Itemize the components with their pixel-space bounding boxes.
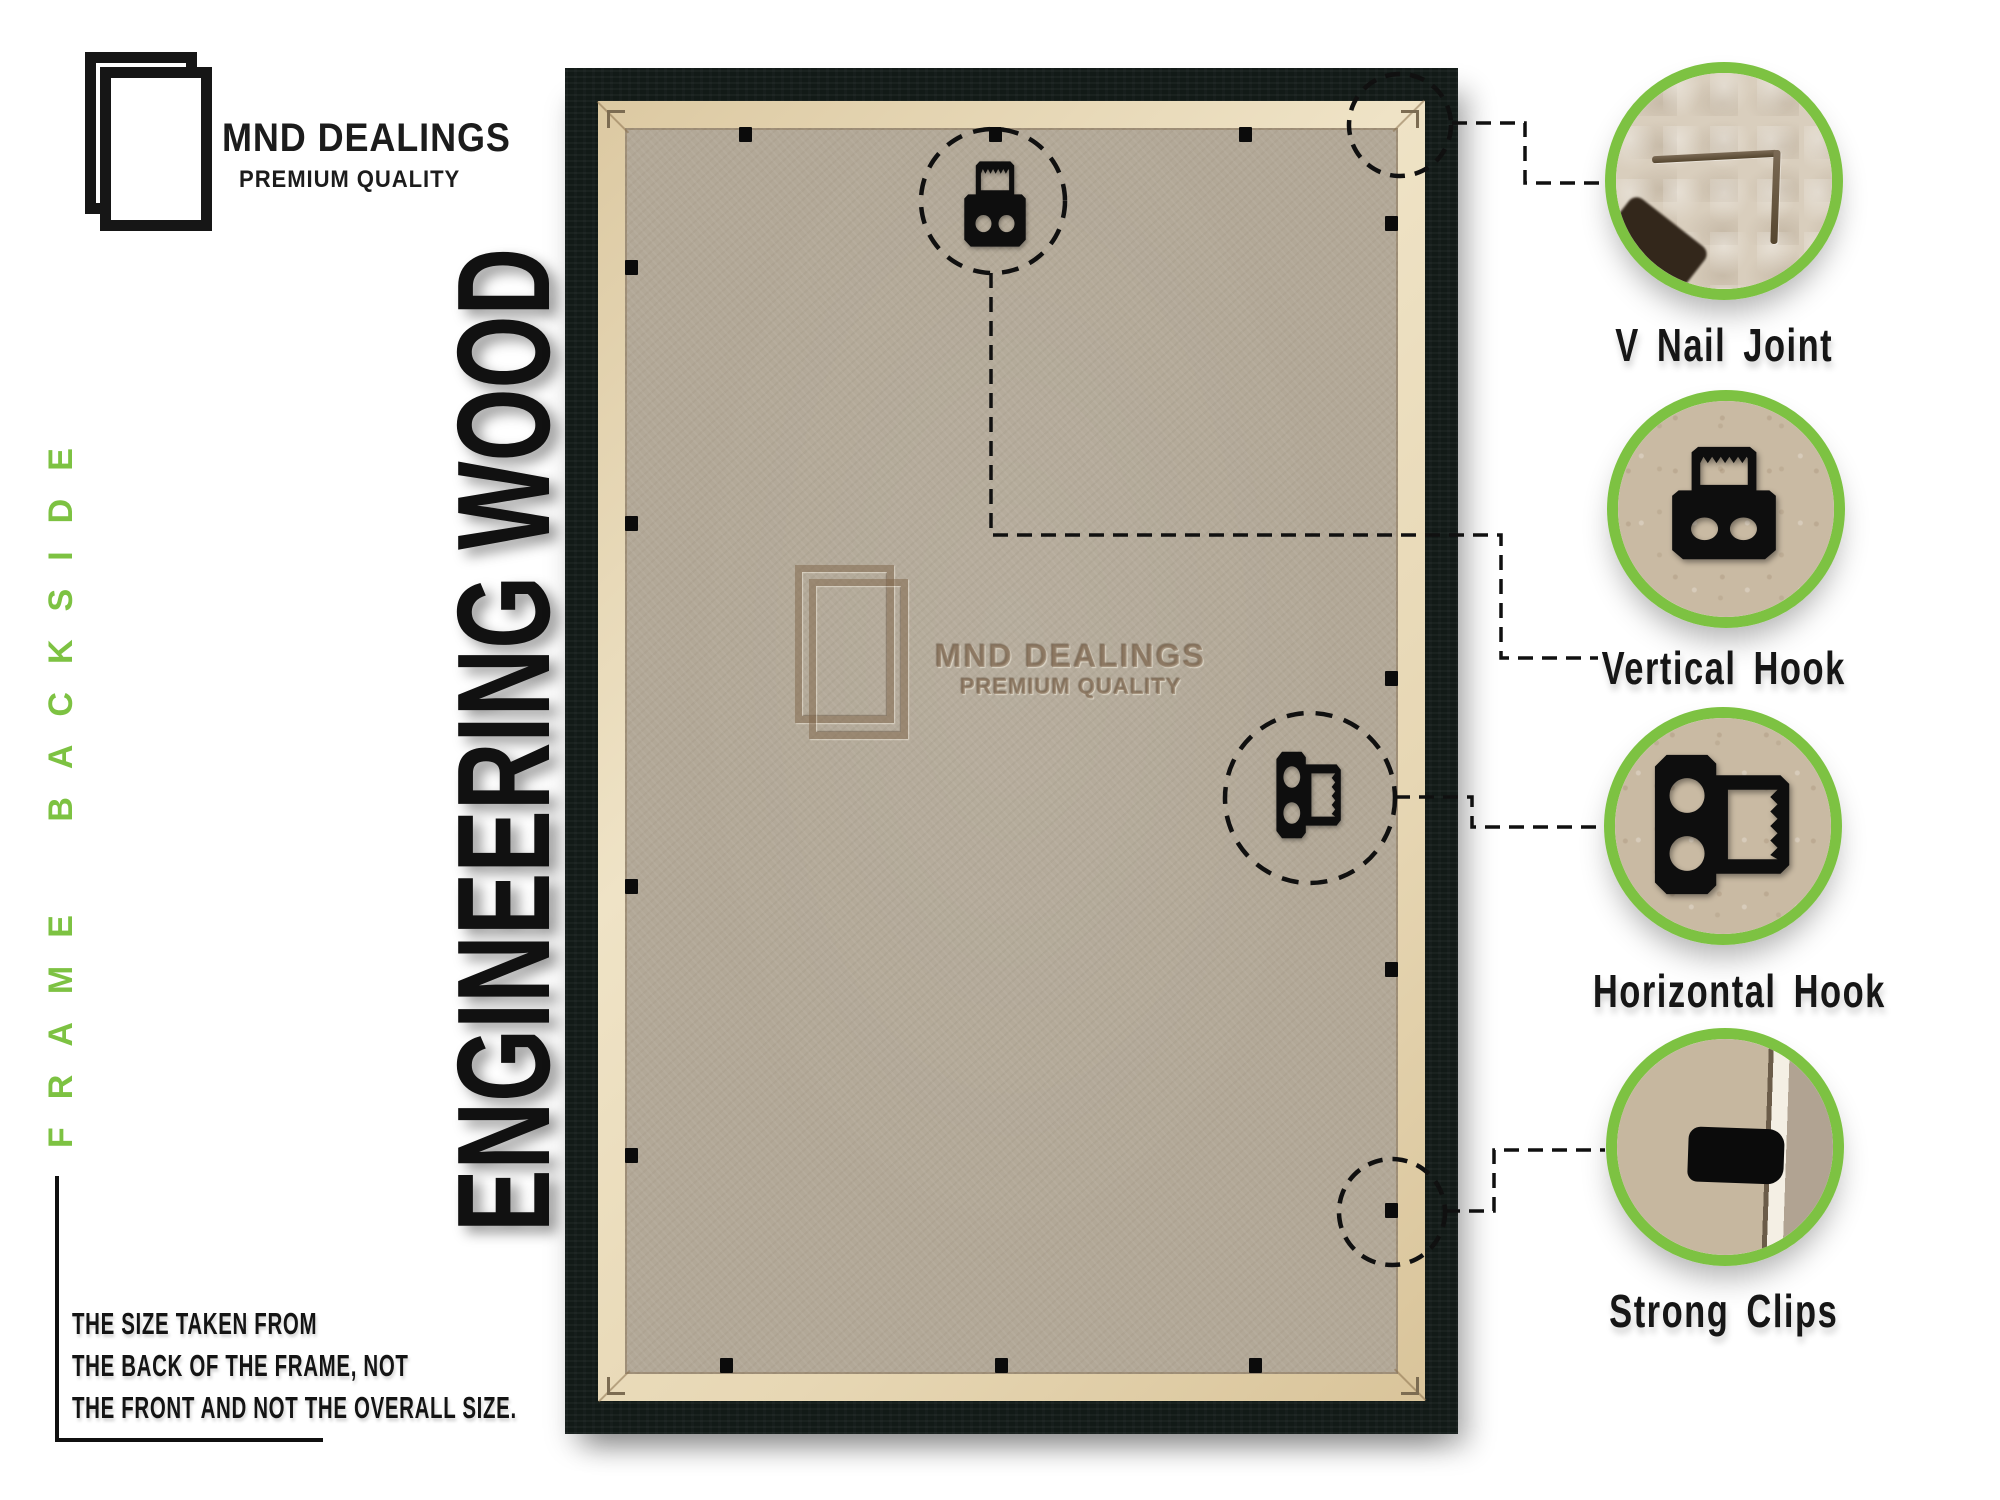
engineering-wood-label: ENGINEERING WOOD <box>438 264 570 1232</box>
watermark-logo-frame-icon <box>809 579 908 739</box>
note-pointer-line <box>55 1176 59 1442</box>
horizontal-hook-icon <box>1652 752 1798 897</box>
callout-label-vertical-hook: Vertical Hook <box>1544 641 1904 695</box>
retaining-clip <box>1239 127 1252 142</box>
frame-photo: MND DEALINGS PREMIUM QUALITY <box>565 68 1458 1434</box>
callout-label-strong-clips: Strong Clips <box>1544 1284 1904 1338</box>
corner-joint-mark <box>1401 1377 1419 1395</box>
watermark-brand-tagline: PREMIUM QUALITY <box>938 674 1204 700</box>
retaining-clip <box>739 127 752 142</box>
strong-clip-icon <box>1687 1126 1785 1184</box>
brand-name: MND DEALINGS <box>222 116 511 161</box>
note-line: THE FRONT AND NOT THE OVERALL SIZE. <box>72 1390 746 1431</box>
retaining-clip <box>989 127 1002 142</box>
retaining-clip <box>1249 1358 1262 1373</box>
retaining-clip <box>1385 962 1398 977</box>
callout-label-v-nail-joint: V Nail Joint <box>1544 318 1904 372</box>
vertical-hook-icon <box>1670 445 1778 561</box>
retaining-clip <box>1385 216 1398 231</box>
note-line: THE SIZE TAKEN FROM <box>72 1306 443 1347</box>
corner-joint-mark <box>607 110 625 128</box>
note-line: THE BACK OF THE FRAME, NOT <box>72 1348 582 1389</box>
callout-strong-clips <box>1606 1028 1844 1266</box>
v-nail-groove <box>1770 150 1780 244</box>
board-edge-photo <box>1617 1039 1833 1255</box>
connector-v-nail-joint <box>1452 123 1608 183</box>
retaining-clip <box>1385 1203 1398 1218</box>
wood-shadow-wedge <box>1605 193 1711 300</box>
corner-joint-mark <box>1401 110 1419 128</box>
vertical-hook-icon <box>963 160 1027 248</box>
connector-strong-clip <box>1445 1150 1605 1211</box>
retaining-clip <box>1385 671 1398 686</box>
frame-backside-infographic: MND DEALINGS PREMIUM QUALITY FRAME BACKS… <box>0 0 2000 1500</box>
retaining-clip <box>720 1358 733 1373</box>
horizontal-hook-icon <box>1275 750 1345 840</box>
engineering-wood-text: ENGINEERING WOOD <box>438 248 570 1232</box>
frame-backside-text: FRAME BACKSIDE <box>42 420 80 1148</box>
callout-vertical-hook <box>1607 390 1845 628</box>
callout-horizontal-hook <box>1604 707 1842 945</box>
v-nail-groove <box>1652 150 1778 164</box>
brand-logo-frame-icon <box>100 67 212 231</box>
retaining-clip <box>625 1148 638 1163</box>
retaining-clip <box>625 516 638 531</box>
cardboard-photo <box>1615 718 1831 934</box>
cardboard-photo <box>1618 401 1834 617</box>
callout-v-nail-joint <box>1605 62 1843 300</box>
retaining-clip <box>995 1358 1008 1373</box>
retaining-clip <box>625 260 638 275</box>
brand-tagline: PREMIUM QUALITY <box>230 166 469 194</box>
frame-backside-label: FRAME BACKSIDE <box>40 415 82 1148</box>
callout-label-horizontal-hook: Horizontal Hook <box>1544 964 1904 1018</box>
retaining-clip <box>625 879 638 894</box>
v-nail-joint-photo <box>1616 73 1832 289</box>
note-underline <box>55 1438 323 1442</box>
watermark-brand-name: MND DEALINGS <box>935 638 1206 675</box>
